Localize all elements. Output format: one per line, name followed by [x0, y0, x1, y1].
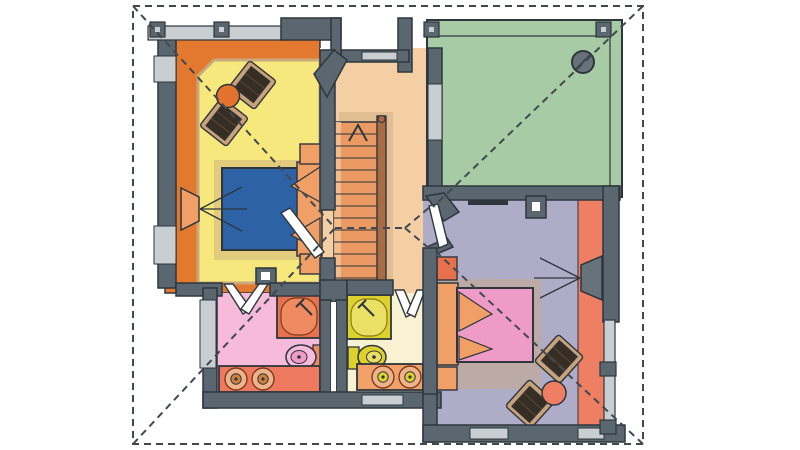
- nightstand: [437, 367, 457, 390]
- handrail-newel: [378, 116, 385, 123]
- nightstand: [300, 254, 321, 274]
- round-table-icon: [542, 381, 566, 405]
- sink-icon: [225, 368, 247, 390]
- shaft-void: [331, 302, 336, 392]
- shower-tray: [351, 299, 387, 336]
- railing-post: [600, 420, 616, 434]
- nightstand: [300, 144, 321, 164]
- sink-icon: [372, 366, 394, 388]
- wall-bedroom-right-top: [423, 186, 620, 200]
- toilet-drain: [372, 355, 376, 359]
- window: [200, 300, 216, 368]
- wall-shaft-left: [320, 300, 331, 395]
- hall-window: [362, 52, 397, 60]
- window: [154, 56, 176, 82]
- railing-post: [600, 362, 616, 376]
- window: [470, 428, 508, 439]
- window: [154, 226, 176, 264]
- bedroom-right-salmon-zone: [578, 200, 604, 426]
- wall-bedroom-right-left: [423, 248, 437, 394]
- wall-shaft-top: [320, 280, 347, 302]
- wall-bedroom-right-right: [603, 186, 619, 322]
- round-table-icon: [217, 85, 240, 108]
- stair-handrail: [377, 116, 386, 292]
- sink-icon: [399, 366, 421, 388]
- wall-bathroom-top: [347, 280, 393, 295]
- flue-box-core: [532, 202, 540, 211]
- floor-plan-page: [0, 0, 800, 450]
- wall-void-right: [398, 18, 412, 72]
- window: [428, 84, 442, 140]
- window: [362, 395, 403, 405]
- terrace-floor: [427, 20, 622, 197]
- wall-bath-bottom: [203, 392, 441, 408]
- floor-plan-drawing: [0, 0, 800, 450]
- bed-headboard: [437, 283, 458, 365]
- staircase: [334, 112, 393, 292]
- sink-icon: [252, 368, 274, 390]
- wall-shaft-right: [336, 300, 347, 395]
- toilet-drain: [297, 355, 301, 359]
- flue-box-core: [261, 272, 270, 280]
